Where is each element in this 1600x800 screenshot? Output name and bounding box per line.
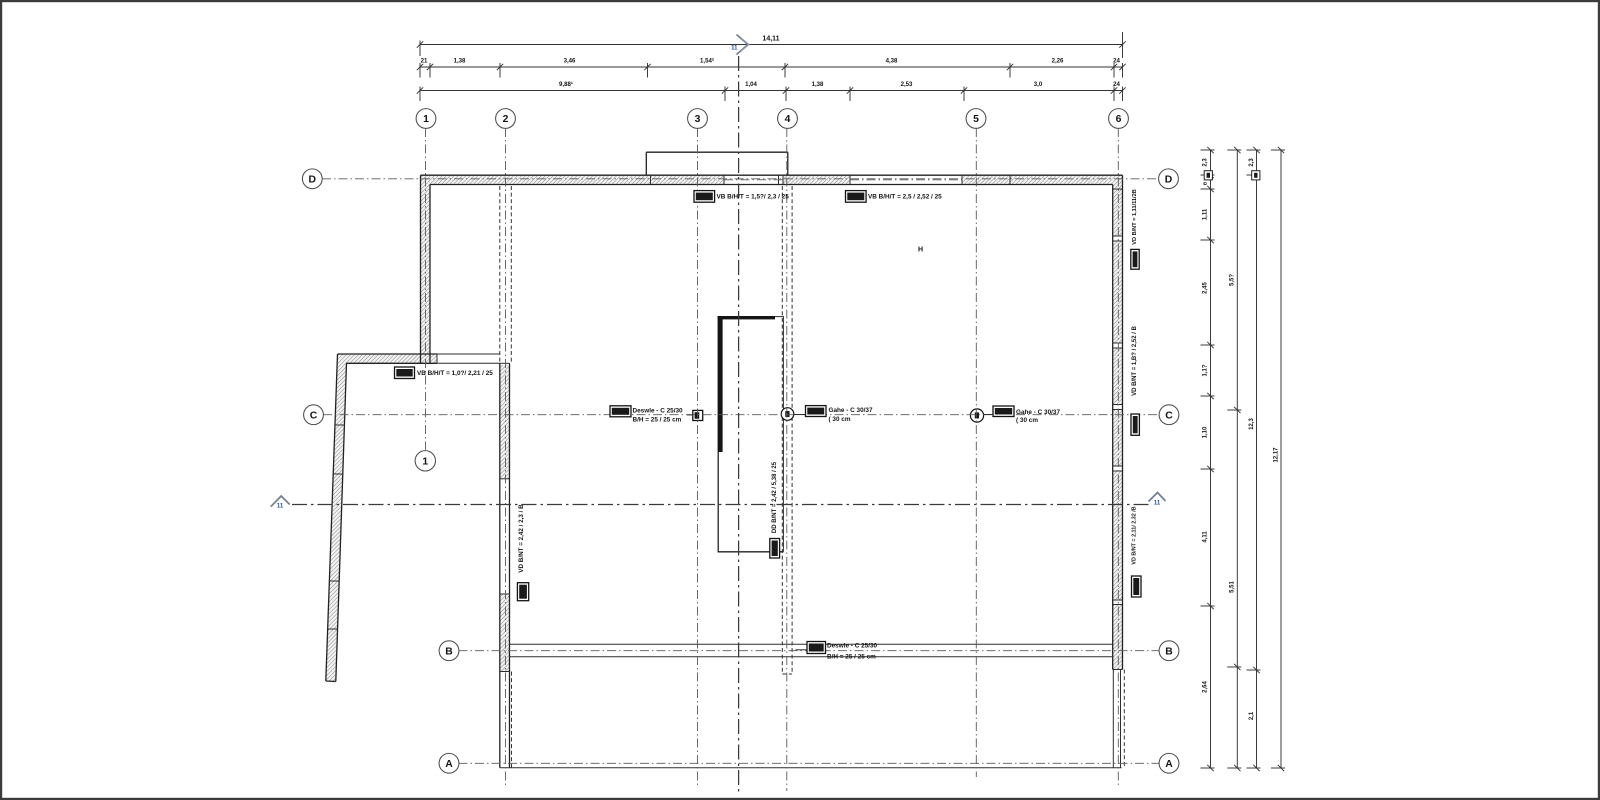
svg-text:9,88¹: 9,88¹ bbox=[559, 81, 573, 88]
svg-text:1: 1 bbox=[422, 457, 428, 468]
svg-text:Deswle - C 25/30: Deswle - C 25/30 bbox=[633, 408, 684, 415]
svg-text:12,3: 12,3 bbox=[1249, 418, 1255, 430]
svg-text:5: 5 bbox=[973, 114, 979, 125]
svg-text:6: 6 bbox=[1116, 114, 1122, 125]
svg-text:4,38: 4,38 bbox=[886, 57, 898, 64]
svg-text:A: A bbox=[445, 759, 453, 770]
svg-text:1: 1 bbox=[423, 114, 429, 125]
svg-text:12,17: 12,17 bbox=[1273, 447, 1279, 463]
svg-text:( 30 cm: ( 30 cm bbox=[1016, 417, 1038, 424]
svg-text:VD B/NT = 2,42 / 2,3 / B: VD B/NT = 2,42 / 2,3 / B bbox=[518, 504, 525, 573]
svg-text:4,11: 4,11 bbox=[1202, 531, 1208, 543]
svg-text:1,54²: 1,54² bbox=[700, 57, 714, 64]
svg-text:VB B/H/T = 1,5?/ 2,3 / 25: VB B/H/T = 1,5?/ 2,3 / 25 bbox=[717, 194, 790, 201]
svg-text:2,64: 2,64 bbox=[1202, 681, 1208, 693]
svg-text:21: 21 bbox=[421, 57, 428, 64]
svg-text:24: 24 bbox=[1113, 57, 1120, 64]
svg-text:B/H = 25 / 25 cm: B/H = 25 / 25 cm bbox=[827, 654, 876, 661]
svg-text:3: 3 bbox=[695, 114, 701, 125]
svg-text:3,0: 3,0 bbox=[1034, 81, 1043, 88]
svg-text:B: B bbox=[1165, 646, 1173, 657]
svg-text:1,38: 1,38 bbox=[812, 81, 824, 88]
svg-text:1,10: 1,10 bbox=[1202, 426, 1208, 438]
svg-text:2,26: 2,26 bbox=[1052, 57, 1064, 64]
svg-text:2,53: 2,53 bbox=[901, 81, 913, 88]
svg-text:C: C bbox=[310, 410, 318, 421]
svg-text:B/H = 25 / 25 cm: B/H = 25 / 25 cm bbox=[633, 417, 682, 424]
svg-text:VD B/NT = 1,B? / 2,52 / B: VD B/NT = 1,B? / 2,52 / B bbox=[1132, 325, 1138, 396]
svg-text:VD B/NT = 2,11/ 2,32 /B: VD B/NT = 2,11/ 2,32 /B bbox=[1132, 506, 1138, 564]
svg-text:1,1?: 1,1? bbox=[1202, 364, 1208, 376]
svg-text:4: 4 bbox=[785, 114, 791, 125]
svg-text:11: 11 bbox=[1154, 501, 1161, 507]
svg-text:2,45: 2,45 bbox=[1202, 282, 1208, 294]
svg-text:Gahe - C 30/37: Gahe - C 30/37 bbox=[829, 407, 873, 414]
svg-text:24: 24 bbox=[1113, 81, 1120, 88]
svg-text:B: B bbox=[445, 646, 453, 657]
svg-text:A: A bbox=[1165, 759, 1173, 770]
svg-text:2,3: 2,3 bbox=[1202, 158, 1208, 167]
svg-text:Gahe - C 30/37: Gahe - C 30/37 bbox=[1016, 409, 1060, 416]
svg-text:D: D bbox=[309, 175, 317, 186]
svg-text:VD B/NT = 1,11/11/2B: VD B/NT = 1,11/11/2B bbox=[1132, 189, 1138, 245]
svg-text:VB B/H/T = 2,5 / 2,52 / 25: VB B/H/T = 2,5 / 2,52 / 25 bbox=[868, 194, 942, 201]
svg-text:VB B/H/T = 1,0?/ 2,21 / 25: VB B/H/T = 1,0?/ 2,21 / 25 bbox=[417, 370, 493, 377]
svg-text:5,5?: 5,5? bbox=[1230, 274, 1236, 286]
svg-text:3,46: 3,46 bbox=[564, 57, 576, 64]
svg-text:1,04: 1,04 bbox=[745, 81, 757, 88]
svg-text:14,11: 14,11 bbox=[762, 36, 779, 43]
svg-text:11: 11 bbox=[731, 46, 738, 52]
svg-text:2: 2 bbox=[503, 114, 509, 125]
svg-text:1,11: 1,11 bbox=[1202, 208, 1208, 220]
svg-text:Deswle - C 25/30: Deswle - C 25/30 bbox=[827, 643, 878, 650]
svg-text:1,38: 1,38 bbox=[454, 57, 466, 64]
svg-text:11: 11 bbox=[277, 504, 284, 510]
svg-text:C: C bbox=[1165, 410, 1173, 421]
svg-text:( 30 cm: ( 30 cm bbox=[829, 416, 851, 423]
svg-text:DD B/NT = 2,42 / 5,38 / 25: DD B/NT = 2,42 / 5,38 / 25 bbox=[772, 461, 778, 533]
svg-text:5,51: 5,51 bbox=[1230, 581, 1236, 593]
svg-text:2,1: 2,1 bbox=[1249, 711, 1255, 720]
svg-text:D: D bbox=[1165, 175, 1173, 186]
svg-text:H: H bbox=[918, 247, 923, 254]
svg-text:2,3: 2,3 bbox=[1249, 158, 1255, 167]
